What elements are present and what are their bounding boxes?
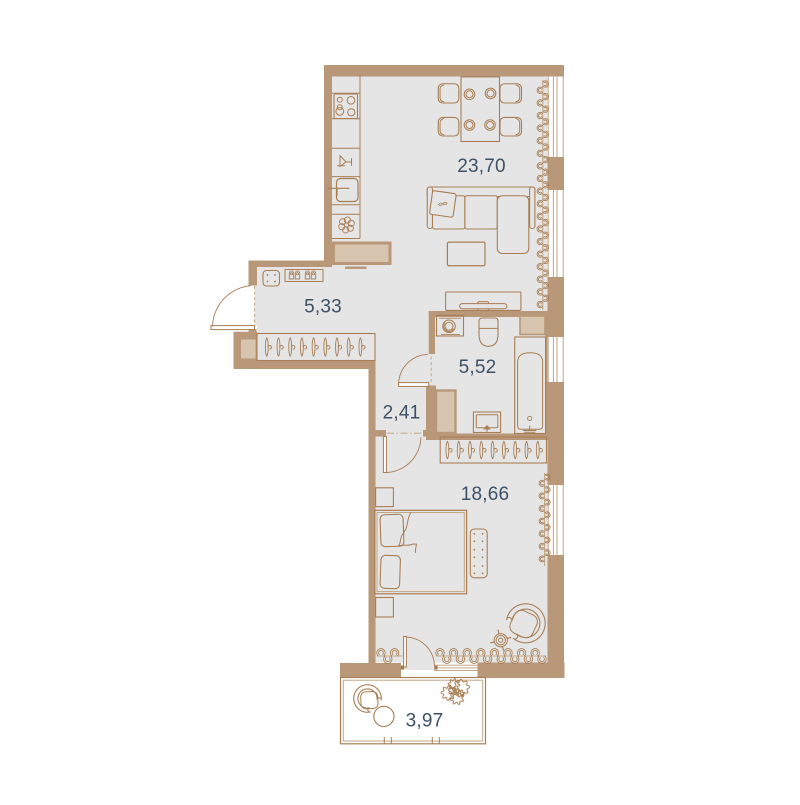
svg-text:18,66: 18,66 <box>461 484 510 505</box>
svg-text:2,41: 2,41 <box>383 403 421 424</box>
svg-text:5,52: 5,52 <box>459 357 497 378</box>
svg-text:3,97: 3,97 <box>406 711 444 732</box>
svg-text:23,70: 23,70 <box>457 156 506 177</box>
svg-text:5,33: 5,33 <box>304 297 342 318</box>
